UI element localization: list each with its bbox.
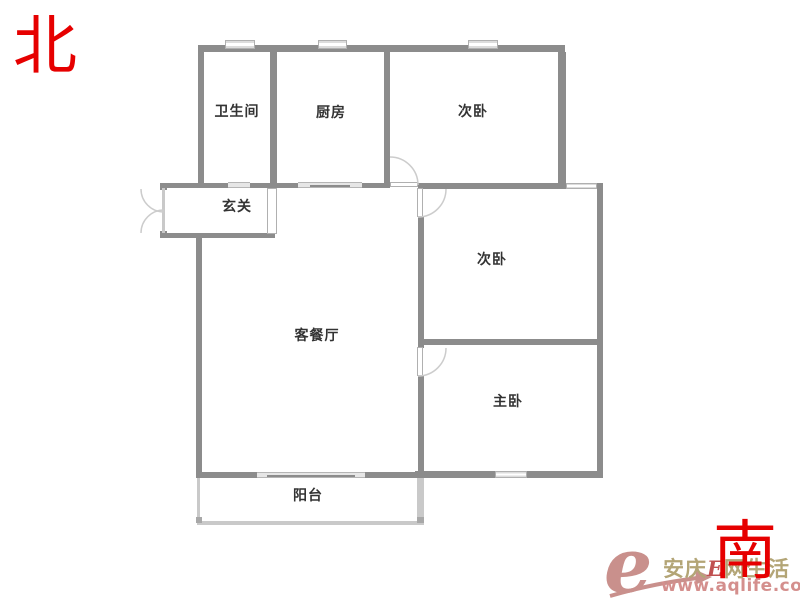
wall-master-bottom-a [415, 471, 495, 478]
balcony-sliding-door [257, 472, 365, 478]
watermark-swoosh-icon [0, 0, 800, 600]
bedroom-north-door-arc [390, 157, 418, 185]
compass-south: 南 [713, 520, 777, 584]
room-label-balcony: 阳台 [293, 485, 323, 505]
entry-left-edge [162, 188, 165, 233]
wall-living-bedrooms-lower [418, 376, 424, 472]
wall-living-bottom-b [365, 472, 422, 478]
window-kitchen [318, 40, 347, 49]
room-label-bedroom-north: 次卧 [458, 101, 488, 121]
wall-hall-d [418, 183, 566, 189]
door-arc-layer [0, 0, 800, 600]
balcony-right-wall [417, 478, 424, 522]
kitchen-sliding-door-leaf [310, 185, 350, 187]
floorplan-canvas: 卫生间 厨房 次卧 玄关 次卧 客餐厅 主卧 阳台 e 安庆E网生活 www.a… [0, 0, 800, 600]
watermark-logo-e: e [604, 528, 652, 600]
wall-right-exterior [597, 183, 603, 478]
window-bedroom-north [468, 40, 498, 49]
window-bedroom-east [566, 183, 597, 189]
kitchen-sliding-door [298, 182, 362, 188]
compass-north: 北 [13, 15, 77, 79]
wall-hall-c [362, 183, 390, 188]
wall-left-upper [198, 45, 204, 188]
wall-living-bottom-a [196, 472, 257, 478]
window-master [495, 471, 527, 478]
room-label-master: 主卧 [493, 391, 523, 411]
balcony-sliding-door-leaf [267, 475, 355, 477]
room-label-kitchen: 厨房 [316, 102, 346, 122]
wall-hall-a [162, 183, 228, 188]
bathroom-door-opening [228, 182, 250, 188]
room-label-living: 客餐厅 [295, 325, 340, 345]
wall-bedroom-north-right [558, 52, 566, 188]
entry-door-arc-bottom [141, 210, 164, 233]
wall-entry-bottom [162, 233, 275, 238]
balcony-corner-left [196, 517, 202, 523]
wall-left-lower [196, 238, 202, 478]
balcony-corner-right [417, 517, 424, 523]
bedroom-east-door-panel [417, 188, 423, 217]
wall-master-bottom-b [527, 471, 603, 478]
room-label-bathroom: 卫生间 [215, 101, 260, 121]
room-label-entry: 玄关 [222, 196, 252, 216]
balcony-bottom-wall [197, 521, 424, 525]
wall-kitchen-bedroom [384, 52, 390, 188]
window-bathroom [225, 40, 255, 49]
bedroom-north-door-panel [390, 182, 418, 187]
wall-bedroom-master-divider [418, 339, 603, 345]
master-door-panel [417, 347, 423, 376]
wall-living-bedrooms-upper [418, 217, 424, 348]
room-label-bedroom-east: 次卧 [477, 249, 507, 269]
wall-bathroom-kitchen [270, 52, 277, 183]
entry-opening-panel [267, 188, 277, 234]
entry-door-arc-top [141, 189, 164, 212]
